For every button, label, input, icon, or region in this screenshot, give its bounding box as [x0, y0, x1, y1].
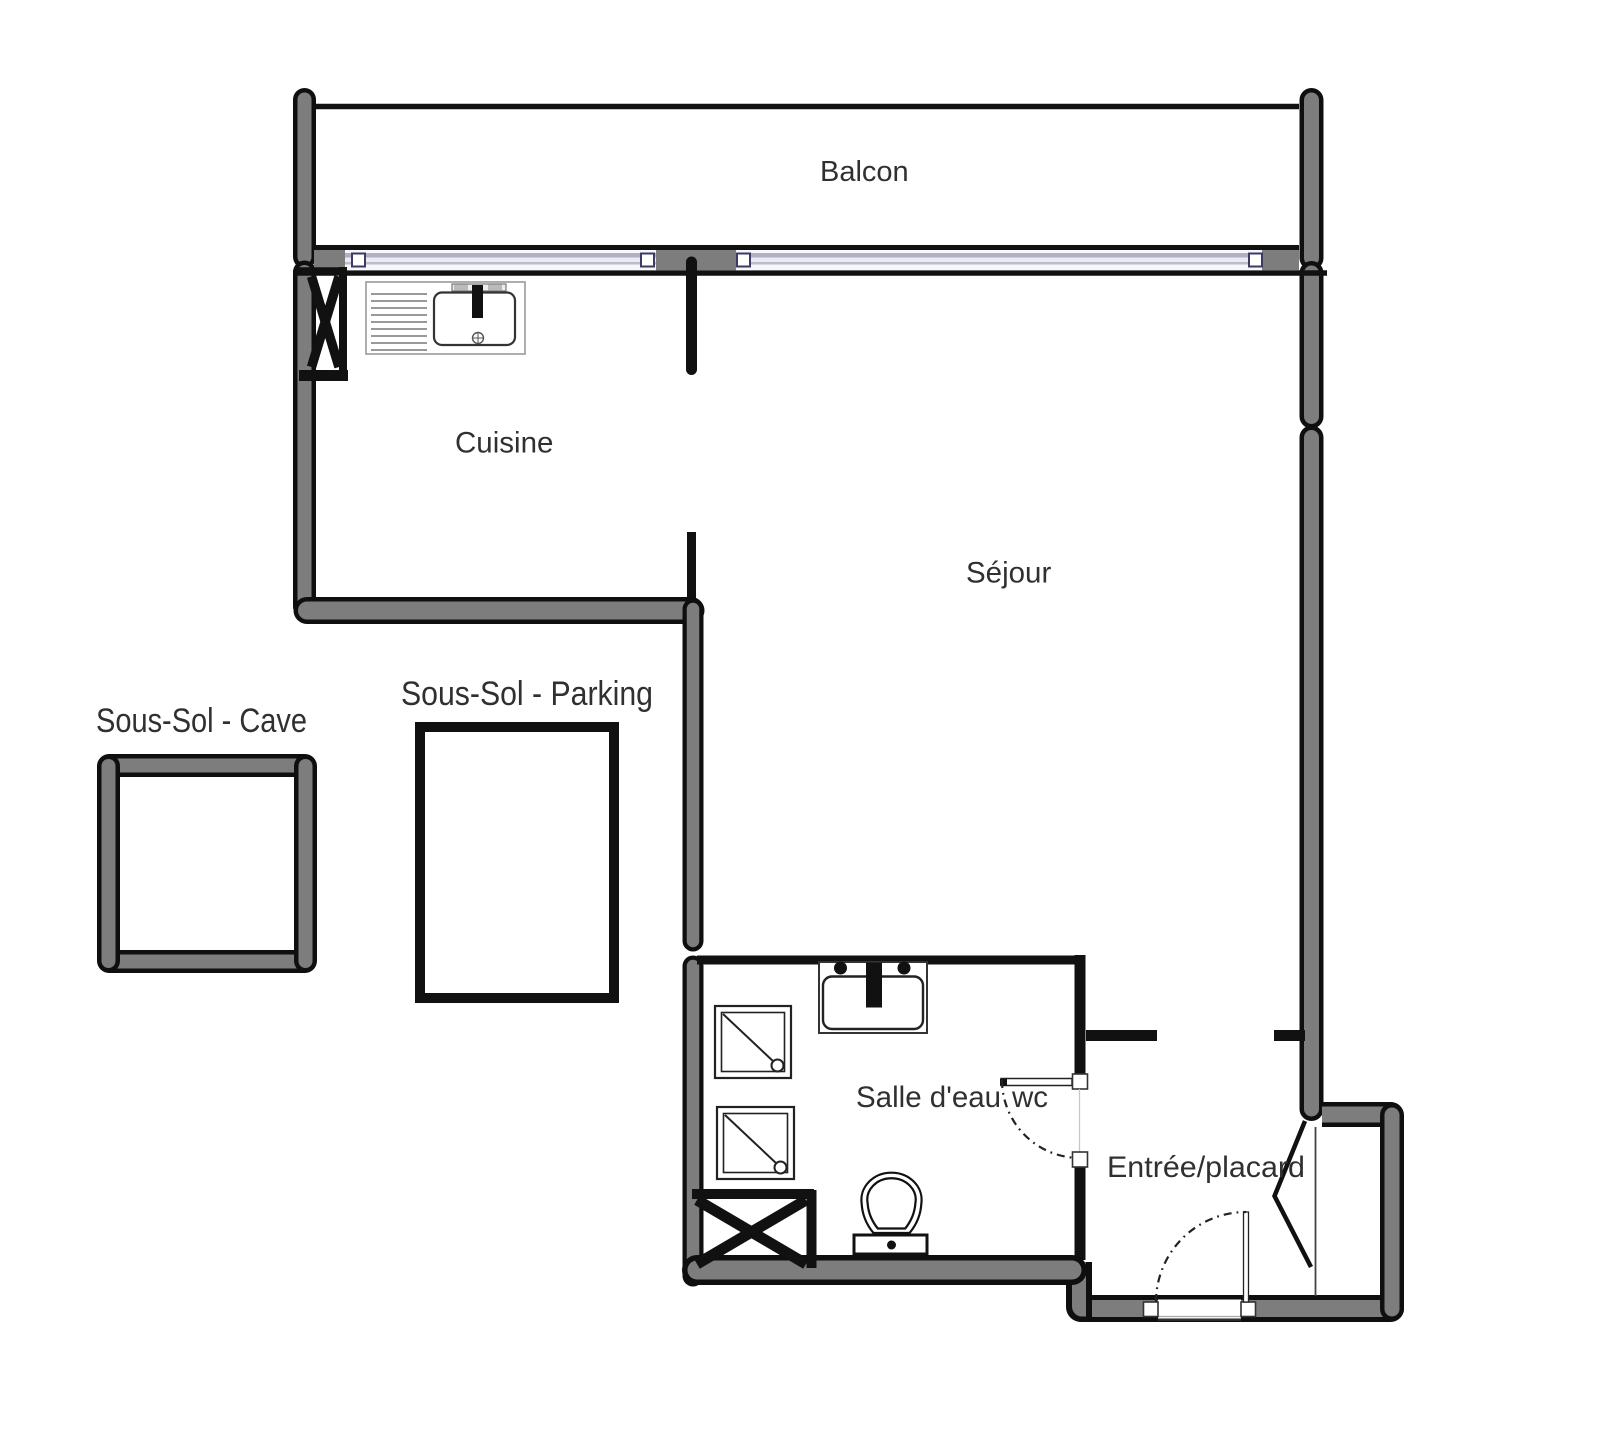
svg-text:Cuisine: Cuisine [455, 427, 553, 460]
svg-text:Balcon: Balcon [820, 156, 909, 188]
svg-text:Sous-Sol - Parking: Sous-Sol - Parking [401, 675, 653, 713]
svg-text:Sous-Sol - Cave: Sous-Sol - Cave [96, 702, 307, 740]
svg-text:Entrée/placard: Entrée/placard [1107, 1151, 1305, 1184]
svg-text:wc: wc [1011, 1081, 1048, 1114]
svg-text:Séjour: Séjour [966, 557, 1051, 590]
svg-text:Salle d'eau: Salle d'eau [856, 1081, 1001, 1114]
